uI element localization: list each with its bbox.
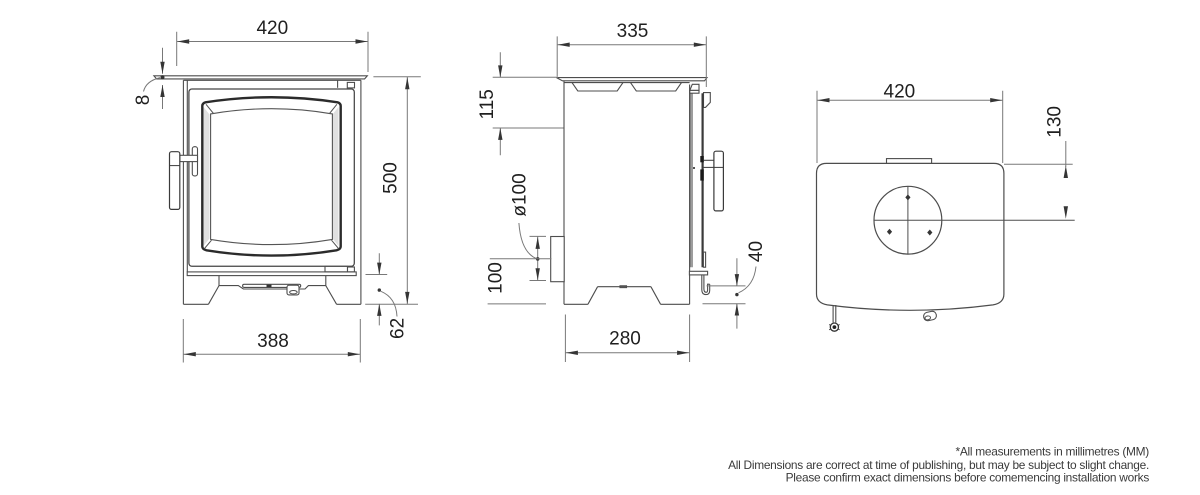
svg-text:420: 420 [256,18,288,39]
svg-text:40: 40 [746,241,767,262]
svg-text:280: 280 [609,329,641,350]
svg-text:130: 130 [1045,106,1066,138]
svg-text:388: 388 [257,331,289,352]
svg-text:62: 62 [387,318,408,339]
svg-text:ø100: ø100 [509,173,530,216]
svg-text:115: 115 [477,89,498,119]
svg-text:*All measurements in millimetr: *All measurements in millimetres (MM) [955,445,1149,459]
svg-text:8: 8 [133,95,154,106]
svg-text:Please confirm exact dimension: Please confirm exact dimensions before c… [786,470,1150,484]
svg-text:500: 500 [380,162,401,194]
svg-text:100: 100 [485,262,506,294]
svg-text:420: 420 [884,82,916,103]
svg-text:335: 335 [617,21,649,42]
